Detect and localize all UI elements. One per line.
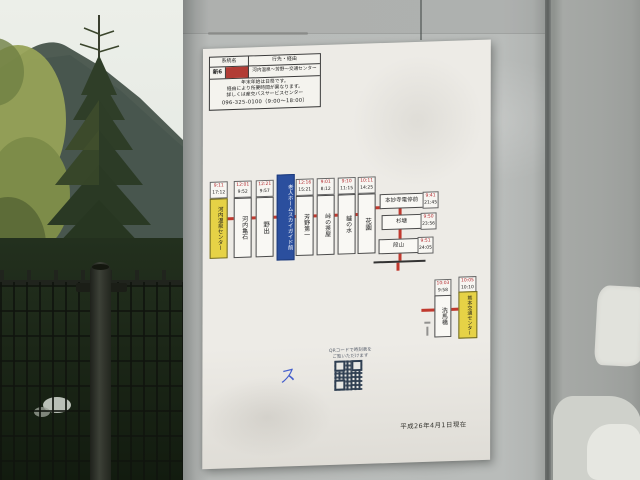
time-bottom: 9:58 (438, 288, 448, 294)
bus-stop-kawachi-kameishi: 河内亀石 (234, 197, 252, 258)
time-chip: 9:50 23:56 (421, 212, 437, 230)
torn-sticker-remnant (594, 285, 640, 367)
small-mark (424, 322, 430, 324)
time-chip: 10:03 9:58 (434, 279, 451, 297)
right-wall (551, 0, 640, 480)
bus-stop-honmyoji-densha-mae: 本妙寺電停前 (380, 193, 424, 209)
time-bottom: 14:25 (360, 185, 373, 191)
time-bottom: 17:12 (212, 190, 225, 196)
bus-stop-node: 野出 (256, 197, 274, 258)
qr-code (334, 360, 362, 391)
time-chip: 9:51 24:05 (418, 236, 434, 254)
bus-stop-toge-no-chaya: 峠の茶屋 (317, 195, 335, 256)
qr-caption: QRコードで時刻表を ご覧いただけます (322, 347, 378, 360)
qr-finder (334, 360, 345, 371)
time-chip: 10:11 14:25 (358, 176, 376, 194)
bus-stop-daniyama: 段山 (379, 238, 419, 254)
fence-clamp-left (76, 283, 91, 292)
time-chip: 12:21 9:57 (256, 180, 274, 198)
time-bottom: 23:56 (422, 221, 435, 227)
bus-stop-kawachi-onsen-center: 河内温泉センター (210, 198, 228, 259)
bus-route-poster: 系統名 行先・経由 新6 河内温泉～芳野～交通センター 年末年始は日祭です。 経… (202, 39, 491, 469)
bus-stop-hanazono: 花園 (358, 193, 376, 254)
route-line-below-daniyama (396, 263, 399, 271)
time-bottom: 15:21 (298, 187, 311, 193)
time-chip: 9:11 17:12 (210, 181, 228, 199)
fence-clamp-right (110, 283, 127, 292)
pole-seam (420, 0, 422, 40)
time-chip: 12:01 9:52 (234, 180, 252, 198)
white-paint-patch-bright (587, 424, 640, 480)
time-bottom: 11:15 (340, 186, 353, 192)
bus-stop-yoshino-daiichi: 芳野第一 (296, 195, 314, 256)
time-bottom: 9:52 (238, 189, 248, 195)
mesh-fence (0, 262, 198, 480)
bus-stop-kumamoto-kotsu-center: 熊本交通センター (458, 291, 477, 339)
time-bottom: 9:57 (260, 188, 270, 194)
route-map: 9:11 17:12 河内温泉センター 12:01 9:52 河内亀石 12:2… (202, 39, 491, 469)
photo: 系統名 行先・経由 新6 河内温泉～芳野～交通センター 年末年始は日祭です。 経… (0, 0, 640, 480)
qr-finder (334, 379, 345, 390)
time-bottom: 21:45 (424, 200, 437, 206)
bus-stop-senbabashi: 洗馬橋 (434, 295, 451, 338)
time-bottom: 24:05 (419, 245, 432, 251)
qr-finder (351, 360, 362, 371)
bus-stop-sugidomo: 杉塘 (382, 214, 422, 230)
time-bottom: 8:12 (321, 186, 331, 192)
time-bottom: 10:10 (461, 285, 474, 291)
bus-stop-tatara-no-mizu: 鑪の水 (338, 194, 356, 255)
note-box-blue: 老人ホームスカイガイド前 (277, 174, 295, 261)
time-chip: 9:01 8:12 (317, 178, 335, 196)
pole-top-band (183, 0, 548, 34)
small-mark (426, 327, 428, 336)
route-line-senbabashi-left (421, 308, 434, 311)
tape-shadow (208, 32, 308, 35)
fence-post (90, 262, 111, 480)
time-chip: 12:16 15:21 (296, 178, 314, 196)
time-chip: 9:10 11:15 (338, 177, 356, 195)
time-chip: 9:41 21:45 (423, 191, 439, 209)
